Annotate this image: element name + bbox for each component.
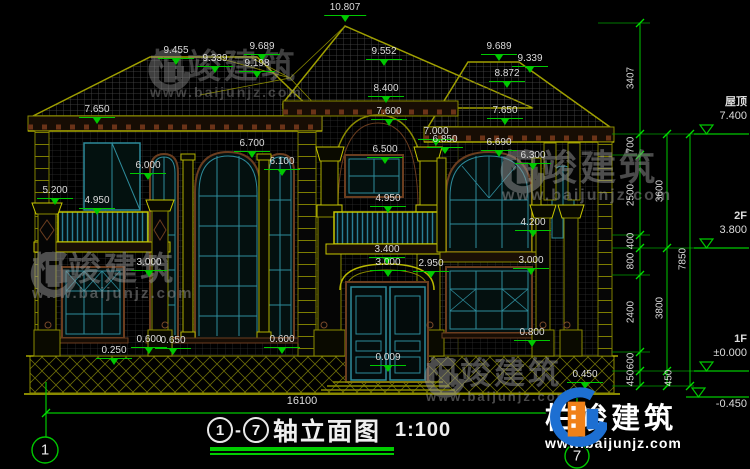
axis-end-circle: 7 — [243, 417, 269, 443]
axis-bubble-1: 1 — [41, 442, 49, 459]
right-roof — [428, 62, 610, 127]
left-1f-window — [58, 267, 128, 343]
axis-range-dash: - — [235, 420, 241, 441]
axis-start-circle: 1 — [207, 417, 233, 443]
drawing-title-text: 轴立面图 — [273, 412, 381, 448]
title-underline-thick — [210, 447, 394, 451]
title-underline-thin — [210, 453, 394, 455]
drawing-title: 1 - 7 轴立面图 1:100 — [207, 412, 451, 448]
total-width-dimension: 16100 — [287, 395, 318, 407]
brand-logo: 柏竣建筑 www.baijunjz.com — [543, 386, 750, 469]
drawing-scale: 1:100 — [395, 419, 451, 442]
left-roof — [33, 57, 318, 116]
cad-canvas: 柏竣建筑www.baijunjz.com柏竣建筑www.baijunjz.com… — [0, 0, 750, 469]
